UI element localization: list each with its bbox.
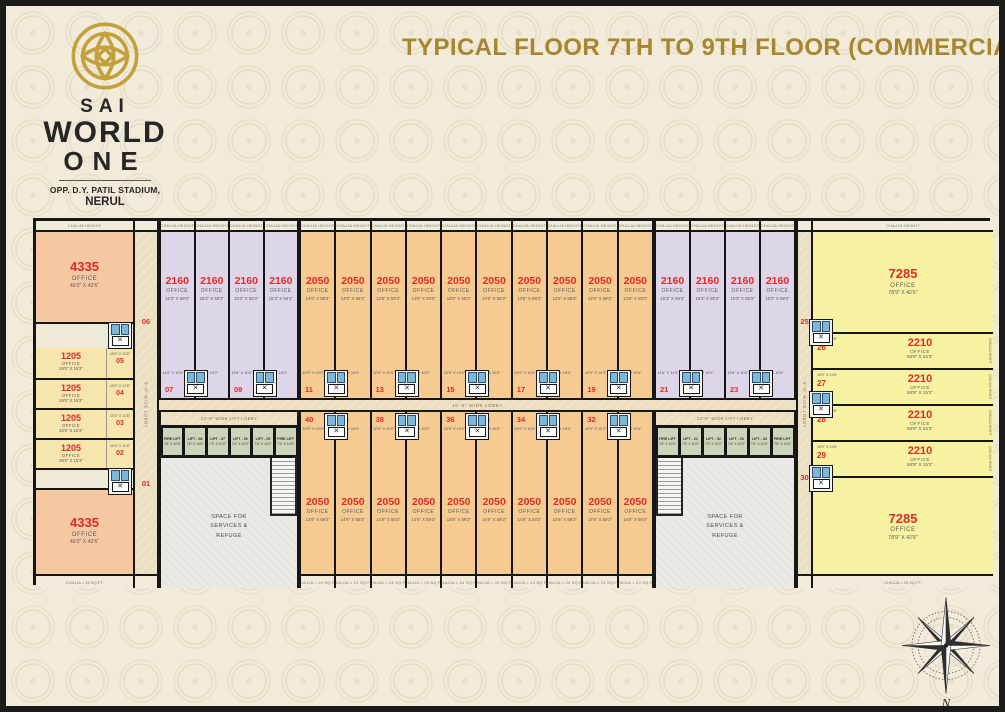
- unit-label: 4335 OFFICE 46'0" X 42'6": [36, 259, 133, 289]
- unit-type: OFFICE: [583, 509, 616, 515]
- unit-label: 2210OFFICE60'9" X 15'3": [847, 442, 993, 476]
- toilet-block: ✕: [607, 413, 631, 440]
- lift-icon: ✕: [813, 333, 830, 343]
- staircase: [270, 458, 297, 516]
- toilet-block: ✕: [324, 413, 348, 440]
- services-line: SPACE FOR: [161, 513, 297, 523]
- toilet-row: ✕: [36, 322, 133, 348]
- lift-icon: ✕: [469, 384, 486, 394]
- chajja-tag: CHAJJA HEIGHT: [265, 221, 298, 232]
- unit-label: 2210OFFICE60'9" X 15'3": [847, 334, 993, 368]
- unit-number: 19: [587, 385, 595, 394]
- unit-number: 04: [107, 390, 133, 397]
- unit-dim: 14'6" X 59'3": [301, 296, 334, 301]
- chajja-tag: CHAJJA = 24 SQ.FT.: [477, 574, 510, 588]
- unit-type: OFFICE: [761, 288, 794, 294]
- unit-number: 38: [376, 415, 384, 424]
- lift-lift-08: LIFT - 087'6" X 10'0": [185, 428, 205, 455]
- unit-type: OFFICE: [36, 276, 133, 282]
- lift-size: 7'6" X 10'0": [728, 442, 745, 446]
- wc-cell: [256, 372, 265, 383]
- wc-cell: [265, 372, 274, 383]
- unit-zone: 2050OFFICE14'6" X 59'3": [513, 232, 546, 362]
- unit-dim: 60'9" X 15'3": [847, 390, 993, 395]
- unit-type: OFFICE: [161, 288, 194, 294]
- unit-zone: 2050OFFICE14'6" X 59'3": [583, 232, 616, 362]
- lift-name: LIFT - 03: [729, 437, 744, 441]
- unit-label: 1205OFFICE28'0" X 15'3": [36, 440, 106, 468]
- lift-lift-02: LIFT - 027'6" X 10'0": [704, 428, 724, 455]
- unit-area: 1205: [36, 413, 106, 423]
- wc-cell: [539, 372, 548, 383]
- wc-cell: [549, 415, 558, 426]
- wc-cell: [610, 372, 619, 383]
- wc-cell: [478, 372, 487, 383]
- lift-lift-03: LIFT - 037'6" X 10'0": [727, 428, 747, 455]
- wc-cell: [752, 372, 761, 383]
- toilet-block: ✕: [108, 322, 132, 349]
- unit-number: 34: [517, 415, 525, 424]
- unit-area: 2050: [372, 496, 405, 508]
- wc-cell: [196, 372, 205, 383]
- unit-area: 2160: [691, 275, 724, 287]
- unit-type: OFFICE: [619, 288, 652, 294]
- lift-icon: ✕: [328, 384, 345, 394]
- lobby-spacer: [135, 221, 157, 232]
- unit-label: 1205OFFICE28'0" X 15'3": [36, 348, 106, 378]
- staircase: [656, 458, 683, 516]
- chajja-tag: CHAJJA HEIGHT: [656, 221, 689, 232]
- unit-wc-strip: 10'9" X 10'0"17✕: [513, 362, 546, 398]
- chajja-tag: CHAJJA HEIGHT: [442, 221, 475, 232]
- unit-dim: 15'3" X 59'3": [230, 296, 263, 301]
- unit-38: 10'9" X 10'0"38✕2050OFFICE14'6" X 59'3"C…: [370, 412, 405, 588]
- unit-label: 2050OFFICE14'6" X 59'3": [442, 496, 475, 522]
- wc-cell: [682, 372, 691, 383]
- lift-lift-07: LIFT - 077'6" X 10'0": [208, 428, 228, 455]
- wc-cell: [812, 321, 821, 332]
- unit-dim: 14'6" X 59'3": [407, 296, 440, 301]
- unit-dim: 15'3" X 59'3": [265, 296, 298, 301]
- unit-label: 4335 OFFICE 46'0" X 42'6": [36, 515, 133, 545]
- chajja-tag: CHAJJA HEIGHT: [548, 221, 581, 232]
- unit-area: 2050: [442, 496, 475, 508]
- unit-number: 06: [135, 317, 157, 326]
- unit-area: 2160: [161, 275, 194, 287]
- chajja-tag: CHAJJA HEIGHT: [477, 221, 510, 232]
- unit-area: 2160: [656, 275, 689, 287]
- unit-28: 10'0" X 11'6"282210OFFICE60'9" X 15'3"CH…: [813, 404, 993, 440]
- wc-cell: [619, 415, 628, 426]
- top-2160-right-strip: CHAJJA HEIGHT2160OFFICE15'3" X 59'3"11'6…: [654, 221, 796, 398]
- lift-size: 7'6" X 10'0": [186, 442, 203, 446]
- lift-icon: ✕: [683, 384, 700, 394]
- unit-label: 2160OFFICE15'3" X 59'3": [691, 275, 724, 301]
- unit-dim: 14'6" X 59'3": [442, 517, 475, 522]
- unit-wc-strip: 10'9" X 10'0"13✕: [372, 362, 405, 398]
- unit-dim: 78'9" X 42'6": [813, 535, 993, 541]
- unit-wc-strip: 10'9" X 10'0"19✕: [583, 362, 616, 398]
- unit-zone: 2050OFFICE14'6" X 59'3": [442, 448, 475, 574]
- chajja-tag: CHAJJA = 24 SQ.FT.: [36, 574, 133, 588]
- unit-area: 4335: [36, 259, 133, 274]
- unit-dim: 28'0" X 15'3": [36, 398, 106, 403]
- unit-dim: 14'6" X 59'3": [477, 296, 510, 301]
- right-2210-rows: 10'0" X 11'6"262210OFFICE60'9" X 15'3"CH…: [813, 332, 993, 476]
- unit-label: 2050OFFICE14'6" X 59'3": [372, 275, 405, 301]
- lift-icon: ✕: [256, 384, 273, 394]
- unit-area: 2210: [847, 373, 993, 385]
- unit-type: OFFICE: [336, 288, 369, 294]
- chajja-tag: CHAJJA HEIGHT: [407, 221, 440, 232]
- lift-icon: ✕: [112, 482, 129, 492]
- unit-dim: 14'6" X 59'3": [513, 517, 546, 522]
- toilet-block: ✕: [679, 370, 703, 397]
- unit-dim: 78'9" X 42'6": [813, 290, 993, 296]
- unit-zone: 2050OFFICE14'6" X 59'3": [407, 448, 440, 574]
- unit-zone: 2050OFFICE14'6" X 59'3": [372, 448, 405, 574]
- unit-type: OFFICE: [442, 288, 475, 294]
- lift-size: 7'6" X 10'0": [705, 442, 722, 446]
- unit-label: 2210OFFICE60'9" X 15'3": [847, 370, 993, 404]
- chajja-tag: CHAJJA HEIGHT: [691, 221, 724, 232]
- lift-icon: ✕: [112, 336, 129, 346]
- lift-size: 7'6" X 10'0": [254, 442, 271, 446]
- unit-32: 10'9" X 10'0"32✕2050OFFICE14'6" X 59'3"C…: [581, 412, 616, 588]
- unit-dim: 14'6" X 59'3": [372, 517, 405, 522]
- unit-side: 10'0" X 11'6"05: [106, 348, 133, 378]
- unit-dim: 14'6" X 59'3": [619, 296, 652, 301]
- unit-area: 2050: [619, 496, 652, 508]
- left-1205-rows: 1205OFFICE28'0" X 15'3"10'0" X 11'6"0512…: [36, 348, 133, 468]
- unit-label: 2050OFFICE14'6" X 59'3": [513, 275, 546, 301]
- wc-cell: [398, 415, 407, 426]
- lift-name: LIFT - 04: [752, 437, 767, 441]
- unit-area: 2050: [301, 496, 334, 508]
- unit-label: 2160OFFICE15'3" X 59'3": [265, 275, 298, 301]
- unit-number: 09: [234, 385, 242, 394]
- wc-dim: 10'9" X 10'0": [303, 427, 324, 431]
- unit-number: 11: [305, 385, 313, 394]
- chajja-tag: CHAJJA HEIGHT: [336, 221, 369, 232]
- unit-number: 07: [165, 385, 173, 394]
- unit-type: OFFICE: [691, 288, 724, 294]
- unit-dim: 14'6" X 59'3": [407, 517, 440, 522]
- lift-fire-lift: FIRE LIFT7'6" X 10'0": [658, 428, 678, 455]
- wc-cell: [762, 372, 771, 383]
- unit-zone: 2050OFFICE14'6" X 59'3": [301, 448, 334, 574]
- wc-dim: 10'9" X 10'0": [585, 427, 606, 431]
- wc-cell: [407, 372, 416, 383]
- unit-type: OFFICE: [813, 527, 993, 533]
- unit-25: 7285 OFFICE 78'9" X 42'6": [813, 232, 993, 332]
- unit-type: OFFICE: [230, 288, 263, 294]
- unit-dim: 14'6" X 59'3": [619, 517, 652, 522]
- unit-area: 4335: [36, 515, 133, 530]
- wc-cell: [822, 393, 831, 404]
- lift-fire-lift: FIRE LIFT7'6" X 10'0": [163, 428, 183, 455]
- unit-type: OFFICE: [548, 509, 581, 515]
- unit-34: 10'9" X 10'0"34✕2050OFFICE14'6" X 59'3"C…: [511, 412, 546, 588]
- lift-size: 7'6" X 10'0": [682, 442, 699, 446]
- unit-wc-strip: 11'6" X 10'0"09✕: [230, 362, 263, 398]
- lift-icon: ✕: [610, 427, 627, 437]
- left-unit-band: CHAJJA HEIGHT 4335 OFFICE 46'0" X 42'6" …: [36, 221, 133, 588]
- unit-label: 2160OFFICE15'3" X 59'3": [196, 275, 229, 301]
- wc-cell: [468, 372, 477, 383]
- lift-fire-lift: FIRE LIFT7'6" X 10'0": [276, 428, 296, 455]
- unit-label: 2050OFFICE14'6" X 59'3": [442, 275, 475, 301]
- lobby-label: 8'-0" WIDE LOBBY: [802, 381, 807, 427]
- unit-09: CHAJJA HEIGHT2160OFFICE15'3" X 59'3"11'6…: [228, 221, 263, 398]
- wc-dim: 10'9" X 10'0": [373, 371, 394, 375]
- toilet-block: ✕: [184, 370, 208, 397]
- unit-side: 10'0" X 11'6"02: [106, 440, 133, 468]
- unit-36: 10'9" X 10'0"36✕2050OFFICE14'6" X 59'3"C…: [440, 412, 475, 588]
- unit-number: 02: [107, 450, 133, 457]
- unit-dim: 14'6" X 59'3": [372, 296, 405, 301]
- wc-dim: 10'0" X 11'6": [107, 352, 133, 356]
- unit-40: 10'9" X 10'0"40✕2050OFFICE14'6" X 59'3"C…: [301, 412, 334, 588]
- unit-side: 10'0" X 11'6"03: [106, 410, 133, 438]
- wc-cell: [812, 393, 821, 404]
- bottom-2050-strip: 10'9" X 10'0"40✕2050OFFICE14'6" X 59'3"C…: [299, 412, 654, 588]
- lift-size: 7'6" X 10'0": [209, 442, 226, 446]
- toilet-block: ✕: [108, 468, 132, 495]
- brand-line-sai: SAI: [30, 96, 180, 118]
- lift-size: 7'6" X 10'0": [164, 442, 181, 446]
- unit-label: 2160OFFICE15'3" X 59'3": [761, 275, 794, 301]
- wc-dim: 10'0" X 11'6": [817, 373, 847, 377]
- unit-19: CHAJJA HEIGHT2050OFFICE14'6" X 59'3"10'9…: [581, 221, 616, 398]
- unit-area: 2050: [548, 496, 581, 508]
- chajja-tag: CHAJJA HEIGHT: [583, 221, 616, 232]
- unit-type: OFFICE: [619, 509, 652, 515]
- lift-icon: ✕: [813, 405, 830, 415]
- unit-zone: 2050OFFICE14'6" X 59'3": [513, 448, 546, 574]
- lift-icon: ✕: [540, 427, 557, 437]
- page-title: TYPICAL FLOOR 7TH TO 9TH FLOOR (COMMERCI…: [402, 34, 991, 62]
- top-2050-strip: CHAJJA HEIGHT2050OFFICE14'6" X 59'3"10'9…: [299, 221, 654, 398]
- unit-zone: 2050OFFICE14'6" X 59'3": [336, 448, 369, 574]
- unit-17: CHAJJA HEIGHT2050OFFICE14'6" X 59'3"10'9…: [511, 221, 546, 398]
- services-area-left: 13'-6" WIDE LIFT LOBBY FIRE LIFT7'6" X 1…: [159, 412, 299, 588]
- unit-dim: 60'9" X 15'3": [847, 354, 993, 359]
- lift-name: FIRE LIFT: [164, 437, 181, 441]
- unit-type: OFFICE: [372, 509, 405, 515]
- unit-label: 2050OFFICE14'6" X 59'3": [548, 275, 581, 301]
- chajja-tag: CHAJJA HEIGHT: [619, 221, 652, 232]
- lift-lift-04: LIFT - 047'6" X 10'0": [750, 428, 770, 455]
- brand-line-one: ONE: [30, 148, 180, 175]
- unit-label: 2050OFFICE14'6" X 59'3": [336, 496, 369, 522]
- central-lobby: 10'-0" WIDE LOBBY: [159, 398, 796, 412]
- unit-label: 7285 OFFICE 78'9" X 42'6": [813, 511, 993, 541]
- lift-icon: ✕: [610, 384, 627, 394]
- unit-dim: 14'6" X 59'3": [477, 517, 510, 522]
- unit-area: 1205: [36, 443, 106, 453]
- chajja-tag: CHAJJA HEIGHT: [513, 221, 546, 232]
- wc-dim: 10'9" X 10'0": [514, 427, 535, 431]
- lift-icon: ✕: [328, 427, 345, 437]
- compass-icon: N: [890, 594, 1002, 712]
- toilet-block: ✕: [809, 465, 833, 492]
- services-space: SPACE FOR SERVICES & REFUGE: [656, 458, 794, 588]
- wc-dim: 10'9" X 10'0": [585, 371, 606, 375]
- brand-divider: [59, 180, 151, 181]
- unit-area: 2050: [513, 496, 546, 508]
- lift-name: LIFT - 02: [706, 437, 721, 441]
- unit-type: OFFICE: [265, 288, 298, 294]
- unit-label: 2050OFFICE14'6" X 59'3": [407, 496, 440, 522]
- unit-dim: 15'3" X 59'3": [656, 296, 689, 301]
- wc-cell: [407, 415, 416, 426]
- unit-number: 29: [817, 451, 847, 460]
- chajja-tag: CHAJJA HEIGHT: [988, 410, 992, 436]
- unit-label: 2160OFFICE15'3" X 59'3": [726, 275, 759, 301]
- wc-cell: [111, 324, 120, 335]
- wc-cell: [478, 415, 487, 426]
- lift-icon: ✕: [753, 384, 770, 394]
- chajja-tag: CHAJJA = 24 SQ.FT.: [336, 574, 369, 588]
- wc-cell: [692, 372, 701, 383]
- unit-zone: 2050OFFICE14'6" X 59'3": [336, 232, 369, 362]
- unit-29: 10'0" X 11'6"292210OFFICE60'9" X 15'3"CH…: [813, 440, 993, 476]
- unit-zone: 2050OFFICE14'6" X 59'3": [477, 448, 510, 574]
- brand-block: SAI WORLD ONE OPP. D.Y. PATIL STADIUM, N…: [30, 20, 180, 208]
- unit-zone: 2160OFFICE15'3" X 59'3": [656, 232, 689, 362]
- unit-dim: 15'3" X 59'3": [196, 296, 229, 301]
- unit-number: 01: [135, 479, 157, 488]
- wc-dim: 10'9" X 10'0": [373, 427, 394, 431]
- unit-dim: 15'3" X 59'3": [161, 296, 194, 301]
- lift-name: LIFT - 01: [683, 437, 698, 441]
- unit-number: 15: [446, 385, 454, 394]
- toilet-block: ✕: [809, 391, 833, 418]
- lift-bank-right: FIRE LIFT7'6" X 10'0"LIFT - 017'6" X 10'…: [656, 425, 794, 458]
- unit-type: OFFICE: [583, 288, 616, 294]
- wc-dim: 10'9" X 10'0": [303, 371, 324, 375]
- unit-area: 2050: [407, 275, 440, 287]
- unit-dim: 14'6" X 59'3": [513, 296, 546, 301]
- wc-cell: [619, 372, 628, 383]
- chajja-tag: CHAJJA HEIGHT: [813, 221, 993, 232]
- unit-label: 2050OFFICE14'6" X 59'3": [407, 275, 440, 301]
- wc-dim: 10'9" X 10'0": [444, 427, 465, 431]
- toilet-block: ✕: [809, 319, 833, 346]
- wc-cell: [337, 415, 346, 426]
- unit-02: 1205OFFICE28'0" X 15'3"10'0" X 11'6"02: [36, 438, 133, 468]
- unit-area: 7285: [813, 511, 993, 526]
- lobby-label: 10'-0" WIDE LOBBY: [452, 403, 503, 408]
- unit-zone: 2050OFFICE14'6" X 59'3": [407, 232, 440, 362]
- services-label: SPACE FOR SERVICES & REFUGE: [656, 513, 794, 542]
- lift-size: 7'6" X 10'0": [277, 442, 294, 446]
- unit-label: 2050OFFICE14'6" X 59'3": [583, 275, 616, 301]
- unit-area: 2050: [619, 275, 652, 287]
- unit-zone: 2050OFFICE14'6" X 59'3": [619, 232, 652, 362]
- unit-06: 4335 OFFICE 46'0" X 42'6": [36, 232, 133, 322]
- unit-label: 2050OFFICE14'6" X 59'3": [477, 275, 510, 301]
- unit-27: 10'0" X 11'6"272210OFFICE60'9" X 15'3"CH…: [813, 368, 993, 404]
- lift-name: LIFT - 08: [188, 437, 203, 441]
- unit-type: OFFICE: [548, 288, 581, 294]
- services-line: SPACE FOR: [656, 513, 794, 523]
- chajja-tag: CHAJJA = 24 SQ.FT.: [513, 574, 546, 588]
- unit-zone: 2160OFFICE15'3" X 59'3": [230, 232, 263, 362]
- unit-dim: 46'0" X 42'6": [36, 283, 133, 289]
- unit-area: 2210: [847, 409, 993, 421]
- unit-label: 2050OFFICE14'6" X 59'3": [336, 275, 369, 301]
- services-line: SERVICES &: [656, 522, 794, 532]
- unit-type: OFFICE: [336, 509, 369, 515]
- unit-zone: 2160OFFICE15'3" X 59'3": [691, 232, 724, 362]
- unit-zone: 2050OFFICE14'6" X 59'3": [301, 232, 334, 362]
- unit-type: OFFICE: [372, 288, 405, 294]
- unit-zone: 2160OFFICE15'3" X 59'3": [726, 232, 759, 362]
- unit-label: 2050OFFICE14'6" X 59'3": [583, 496, 616, 522]
- chajja-tag: CHAJJA = 24 SQ.FT.: [442, 574, 475, 588]
- wc-dim: 10'0" X 11'6": [107, 414, 133, 418]
- services-line: REFUGE: [656, 532, 794, 542]
- unit-04: 1205OFFICE28'0" X 15'3"10'0" X 11'6"04: [36, 378, 133, 408]
- wc-cell: [121, 324, 130, 335]
- toilet-block: ✕: [324, 370, 348, 397]
- unit-area: 2050: [513, 275, 546, 287]
- wc-cell: [822, 321, 831, 332]
- unit-label: 2050OFFICE14'6" X 59'3": [548, 496, 581, 522]
- compass-north-label: N: [941, 696, 952, 711]
- lift-name: FIRE LIFT: [774, 437, 791, 441]
- wc-cell: [121, 470, 130, 481]
- lift-name: FIRE LIFT: [277, 437, 294, 441]
- services-line: REFUGE: [161, 532, 297, 542]
- unit-area: 2050: [301, 275, 334, 287]
- unit-dim: 28'0" X 15'3": [36, 366, 106, 371]
- unit-dim: 14'6" X 59'3": [336, 296, 369, 301]
- unit-number: 27: [817, 379, 847, 388]
- lobby-label: 8'-0" WIDE LOBBY: [144, 381, 149, 427]
- toilet-block: ✕: [395, 370, 419, 397]
- left-vertical-lobby: 06 8'-0" WIDE LOBBY 01: [133, 221, 159, 588]
- unit-number: 21: [660, 385, 668, 394]
- unit-area: 2160: [230, 275, 263, 287]
- chajja-tag: CHAJJA HEIGHT: [301, 221, 334, 232]
- lift-size: 7'6" X 10'0": [659, 442, 676, 446]
- toilet-block: ✕: [607, 370, 631, 397]
- lift-size: 7'6" X 10'0": [751, 442, 768, 446]
- wc-cell: [539, 415, 548, 426]
- unit-zone: 2160OFFICE15'3" X 59'3": [161, 232, 194, 362]
- unit-label: 2160OFFICE15'3" X 59'3": [161, 275, 194, 301]
- unit-type: OFFICE: [726, 288, 759, 294]
- unit-label: 2160OFFICE15'3" X 59'3": [656, 275, 689, 301]
- wc-dim: 11'6" X 10'0": [232, 371, 253, 375]
- unit-area: 2050: [583, 496, 616, 508]
- unit-15: CHAJJA HEIGHT2050OFFICE14'6" X 59'3"10'9…: [440, 221, 475, 398]
- unit-type: OFFICE: [36, 532, 133, 538]
- unit-label: 2160OFFICE15'3" X 59'3": [230, 275, 263, 301]
- unit-type: OFFICE: [513, 509, 546, 515]
- unit-area: 2050: [477, 496, 510, 508]
- unit-number: 03: [107, 420, 133, 427]
- chajja-tag: CHAJJA HEIGHT: [988, 446, 992, 472]
- lift-bank-left: FIRE LIFT7'6" X 10'0"LIFT - 087'6" X 10'…: [161, 425, 297, 458]
- services-label: SPACE FOR SERVICES & REFUGE: [161, 513, 297, 542]
- unit-05: 1205OFFICE28'0" X 15'3"10'0" X 11'6"05: [36, 348, 133, 378]
- unit-area: 2160: [265, 275, 298, 287]
- brand-address: OPP. D.Y. PATIL STADIUM,: [30, 185, 180, 195]
